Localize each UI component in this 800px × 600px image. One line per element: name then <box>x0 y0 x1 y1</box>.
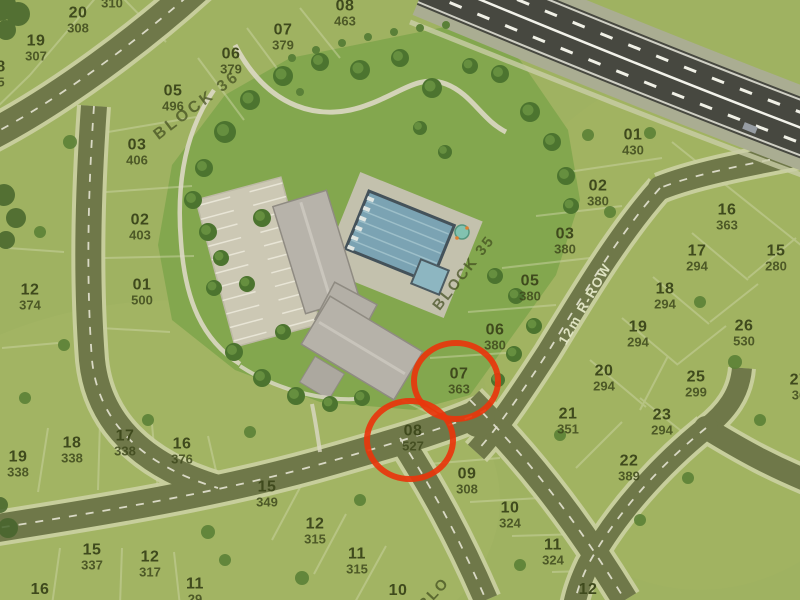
lot-label: 08463 <box>334 0 356 28</box>
lot-label: 21351 <box>557 407 579 436</box>
lot-label: 22389 <box>618 454 640 483</box>
lot-label: 02380 <box>587 179 609 208</box>
lot-label: 20308 <box>67 6 89 35</box>
lot-label: 12315 <box>304 517 326 546</box>
lot-label: 19294 <box>627 320 649 349</box>
site-plan-map: 2030819307853100846307379063790549603406… <box>0 0 800 600</box>
lot-label: 16 <box>31 582 50 598</box>
lot-label: 18338 <box>61 436 83 465</box>
lot-label: 01430 <box>622 128 644 157</box>
lot-label: 15337 <box>81 543 103 572</box>
lot-label: 16363 <box>716 203 738 232</box>
lot-label: 15280 <box>765 244 787 273</box>
lot-label: 03380 <box>554 227 576 256</box>
lot-label: 23294 <box>651 408 673 437</box>
lot-label: 05380 <box>519 274 541 303</box>
lot-label: 15349 <box>256 480 278 509</box>
lot-label: 19307 <box>25 34 47 63</box>
lot-label: 12317 <box>139 550 161 579</box>
lot-label: 17294 <box>686 244 708 273</box>
lot-label: 85 <box>0 60 6 89</box>
lot-label-highlighted-08[interactable]: 08527 <box>402 424 424 453</box>
lot-label: 2736 <box>790 373 800 402</box>
lot-labels-layer: 2030819307853100846307379063790549603406… <box>0 0 800 600</box>
lot-label: 06380 <box>484 323 506 352</box>
lot-label: 26530 <box>733 319 755 348</box>
lot-label: 19338 <box>7 450 29 479</box>
lot-label: 10 <box>389 583 408 599</box>
lot-label: 07379 <box>272 23 294 52</box>
lot-label: 20294 <box>593 364 615 393</box>
lot-label: 1129 <box>186 577 204 600</box>
lot-label: 18294 <box>654 282 676 311</box>
lot-label: 16376 <box>171 437 193 466</box>
lot-label: 09308 <box>456 467 478 496</box>
lot-label: 01500 <box>131 278 153 307</box>
lot-label: 10324 <box>499 501 521 530</box>
lot-label: 12374 <box>19 283 41 312</box>
lot-label: 310 <box>101 0 123 10</box>
lot-label: 11324 <box>542 538 564 567</box>
lot-label: 17338 <box>114 429 136 458</box>
lot-label: 25299 <box>685 370 707 399</box>
lot-label: 12 <box>579 582 598 598</box>
lot-label-highlighted-07[interactable]: 07363 <box>448 367 470 396</box>
lot-label: 03406 <box>126 138 148 167</box>
lot-label: 02403 <box>129 213 151 242</box>
lot-label: 11315 <box>346 547 368 576</box>
